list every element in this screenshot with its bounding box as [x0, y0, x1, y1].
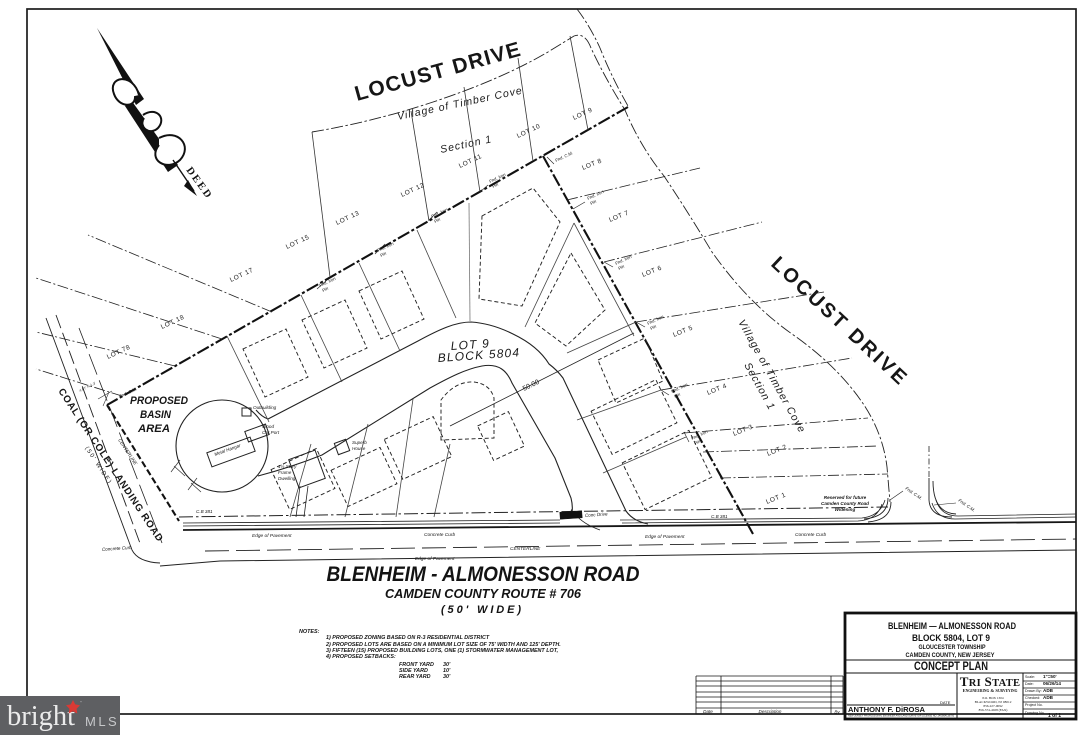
svg-text:06/26/14: 06/26/14: [1043, 681, 1061, 686]
svg-text:30': 30': [443, 674, 451, 680]
svg-text:856-374-4028 (FAX): 856-374-4028 (FAX): [979, 708, 1008, 712]
svg-text:1) PROPOSED ZONING BASED ON R: 1) PROPOSED ZONING BASED ON R-3 RESIDENT…: [326, 635, 490, 641]
svg-text:Reserved for future: Reserved for future: [824, 495, 867, 500]
svg-text:Checked:: Checked:: [1025, 696, 1040, 700]
svg-text:bright: bright: [7, 701, 75, 732]
svg-text:DATE: DATE: [940, 700, 951, 705]
svg-text:AREA: AREA: [137, 423, 170, 435]
svg-text:Date: Date: [703, 709, 713, 714]
svg-text:Drawn By:: Drawn By:: [1025, 689, 1042, 693]
svg-text:CAMDEN COUNTY, NEW JERSEY: CAMDEN COUNTY, NEW JERSEY: [906, 652, 996, 659]
svg-text:1 of 1: 1 of 1: [1048, 713, 1061, 719]
svg-text:BLENHEIM - ALMONESSON ROAD: BLENHEIM - ALMONESSON ROAD: [327, 563, 640, 586]
svg-text:Frame: Frame: [278, 470, 292, 475]
svg-text:(50' WIDE): (50' WIDE): [441, 604, 521, 616]
svg-text:Concrete Curb: Concrete Curb: [795, 532, 827, 538]
svg-text:Scale:: Scale:: [1025, 675, 1035, 679]
svg-text:Car Port: Car Port: [262, 430, 280, 435]
svg-text:Edge of Pavement: Edge of Pavement: [415, 556, 455, 562]
svg-text:Date:: Date:: [1025, 682, 1034, 686]
svg-text:Outbuilding: Outbuilding: [253, 405, 277, 410]
svg-text:BASIN: BASIN: [140, 409, 172, 421]
svg-text:By: By: [834, 710, 840, 715]
svg-text:ADB: ADB: [1043, 688, 1054, 693]
svg-text:Project No.: Project No.: [1025, 703, 1043, 707]
svg-text:CAMDEN COUNTY ROUTE # 706: CAMDEN COUNTY ROUTE # 706: [385, 586, 582, 601]
svg-text:PROPOSED: PROPOSED: [130, 395, 188, 407]
svg-text:C.B 381: C.B 381: [196, 509, 213, 514]
svg-text:BLOCK 5804, LOT 9: BLOCK 5804, LOT 9: [912, 633, 990, 643]
svg-text:ADB: ADB: [1043, 695, 1054, 700]
svg-text:House: House: [352, 446, 366, 451]
svg-text:NEW JERSEY PROFESSIONAL ENGINE: NEW JERSEY PROFESSIONAL ENGINEER AND LAN…: [848, 714, 954, 718]
svg-text:NOTES:: NOTES:: [299, 629, 320, 635]
svg-text:CENTERLINE: CENTERLINE: [510, 546, 541, 552]
svg-text:1½ Story: 1½ Story: [278, 463, 297, 469]
svg-text:Description: Description: [759, 709, 782, 714]
svg-text:Edge of Pavement: Edge of Pavement: [252, 533, 292, 539]
svg-text:Dwelling: Dwelling: [278, 476, 296, 481]
svg-text:GLOUCESTER TOWNSHIP: GLOUCESTER TOWNSHIP: [919, 644, 986, 651]
svg-text:Drawing No.: Drawing No.: [1025, 711, 1045, 715]
svg-text:ENGINEERING & SURVEYING: ENGINEERING & SURVEYING: [963, 688, 1018, 693]
svg-text:Superb: Superb: [352, 440, 367, 445]
svg-text:Concrete Curb: Concrete Curb: [424, 532, 456, 538]
svg-text:Widening: Widening: [835, 507, 856, 512]
svg-text:4) PROPOSED SETBACKS:: 4) PROPOSED SETBACKS:: [325, 654, 396, 660]
svg-text:1"=50': 1"=50': [1043, 674, 1057, 679]
svg-text:Wood: Wood: [262, 424, 274, 429]
svg-text:BLENHEIM — ALMONESSON ROAD: BLENHEIM — ALMONESSON ROAD: [888, 621, 1016, 632]
svg-text:CONCEPT PLAN: CONCEPT PLAN: [914, 659, 988, 673]
svg-text:REAR YARD: REAR YARD: [399, 674, 431, 680]
svg-text:Edge of Pavement: Edge of Pavement: [645, 534, 685, 540]
svg-text:MLS: MLS: [85, 714, 119, 729]
svg-text:Camden County Road: Camden County Road: [821, 501, 869, 506]
svg-text:C.B 381: C.B 381: [711, 514, 728, 519]
